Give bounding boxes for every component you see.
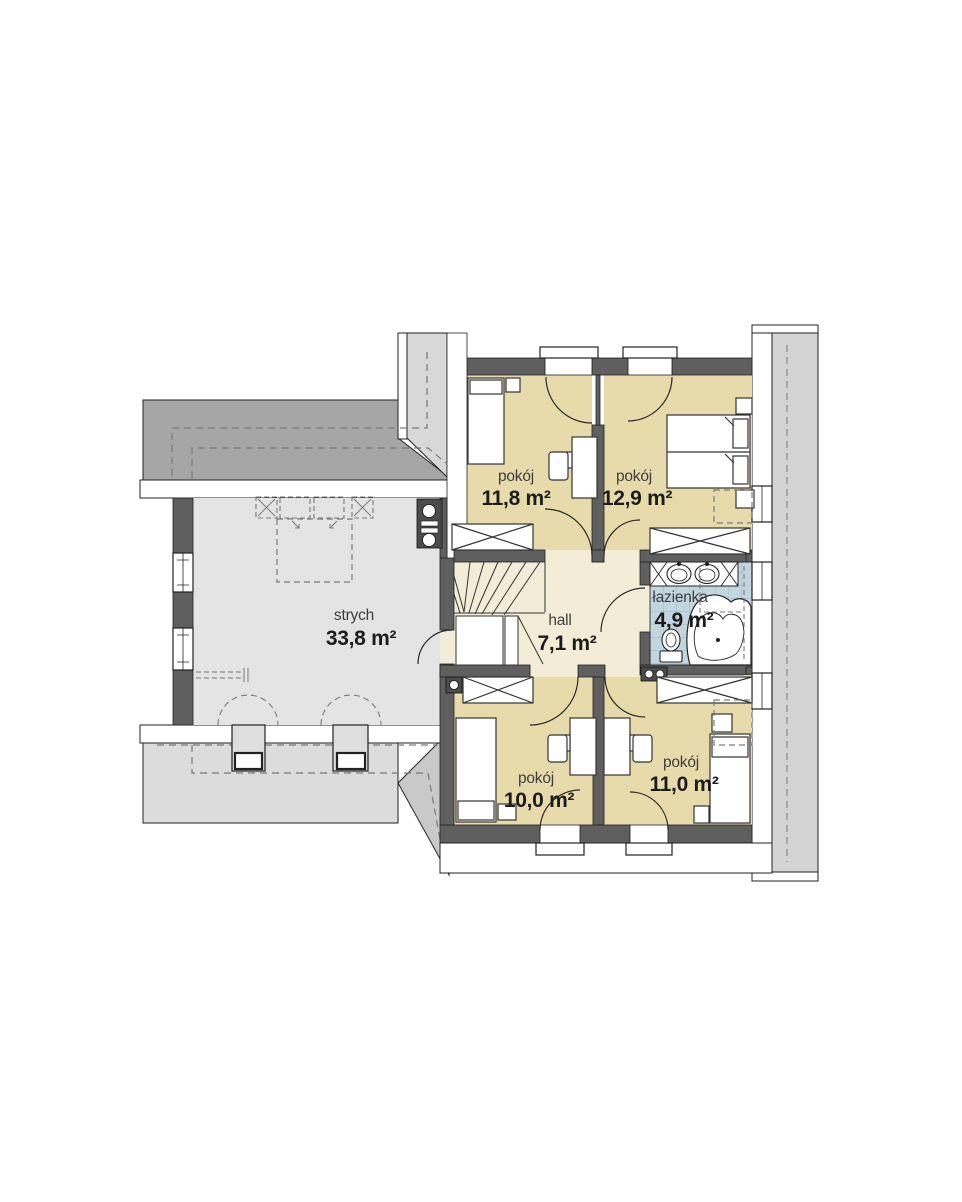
room-top-left-area-label: 11,8 m²	[481, 487, 550, 510]
window-opening	[540, 825, 580, 843]
threshold	[604, 550, 640, 562]
wall	[592, 358, 628, 375]
desk	[572, 437, 597, 498]
wall	[668, 825, 752, 843]
pillow	[733, 456, 748, 484]
room-top-right-name-label: pokój	[616, 468, 652, 485]
window-opening	[545, 358, 592, 375]
wall	[592, 550, 604, 562]
wall	[173, 592, 193, 628]
hall-area-label: 7,1 m²	[538, 632, 597, 655]
stair-landing	[456, 616, 503, 665]
pillow	[470, 380, 502, 394]
window-sill	[540, 347, 598, 358]
threshold	[440, 630, 454, 664]
toilet-tank	[660, 651, 682, 662]
knee-wall-top	[140, 480, 467, 498]
wall	[440, 558, 454, 630]
nightstand	[712, 714, 732, 732]
pillow	[712, 737, 748, 757]
room-bottom-left-name-label: pokój	[518, 770, 554, 787]
desk	[570, 718, 596, 775]
wall	[454, 550, 545, 562]
wall	[640, 562, 650, 585]
wall	[173, 670, 193, 725]
knee-wall-bottom	[140, 725, 452, 743]
chair	[549, 452, 568, 480]
nightstand	[694, 806, 709, 823]
window-opening	[630, 825, 668, 843]
room-bottom-right-name-label: pokój	[663, 754, 699, 771]
nightstand	[736, 490, 754, 508]
roof-right-band	[772, 333, 818, 873]
pillow	[458, 801, 494, 820]
wall	[440, 825, 540, 843]
threshold	[605, 665, 645, 677]
wall-nub	[746, 667, 752, 675]
threshold	[545, 550, 592, 562]
stair-stringer	[505, 616, 518, 665]
floor-plan-canvas: pokój 11,8 m² pokój 12,9 m² hall 7,1 m² …	[0, 0, 962, 1202]
dormer-window	[235, 753, 262, 769]
wall	[467, 358, 545, 375]
toilet-bowl	[662, 629, 680, 651]
window-sill	[536, 843, 584, 855]
gable-wall-right	[752, 333, 772, 873]
window-opening	[628, 358, 672, 375]
attic-name-label: strych	[334, 607, 374, 624]
faucet	[705, 562, 709, 566]
wall	[672, 358, 752, 375]
lower-wall-band	[440, 843, 772, 873]
faucet	[677, 562, 681, 566]
pillow	[733, 419, 748, 448]
vent-stack-hall	[446, 677, 462, 693]
attic-area-label: 33,8 m²	[326, 627, 397, 650]
wall	[578, 665, 605, 677]
chair	[548, 735, 567, 762]
wall-partition-thin	[596, 375, 600, 427]
wall	[580, 825, 630, 843]
window-sill	[626, 843, 672, 855]
nightstand	[736, 398, 752, 414]
room-top-left-name-label: pokój	[498, 468, 534, 485]
wall	[640, 632, 650, 665]
dormer-window	[337, 753, 365, 769]
vanity-counter	[650, 562, 738, 586]
chimney-stack	[417, 499, 442, 548]
chair	[633, 735, 652, 762]
roof-ridge-wall	[398, 333, 407, 439]
bathtub-drain	[716, 638, 720, 642]
wall	[440, 665, 530, 677]
bathroom-name-label: łazienka	[652, 589, 708, 606]
bathroom-area-label: 4,9 m²	[655, 609, 714, 632]
threshold	[530, 665, 578, 677]
nightstand	[506, 378, 520, 392]
floor-plan: pokój 11,8 m² pokój 12,9 m² hall 7,1 m² …	[0, 0, 962, 1202]
attic-floor	[193, 498, 440, 725]
window-recess	[744, 564, 752, 598]
wall	[173, 498, 193, 553]
desk	[604, 718, 630, 775]
hall-name-label: hall	[548, 612, 571, 629]
room-bottom-right-area-label: 11,0 m²	[649, 773, 718, 796]
threshold	[640, 585, 650, 632]
room-bottom-left-area-label: 10,0 m²	[504, 789, 575, 812]
window-sill	[623, 347, 677, 358]
room-top-right-area-label: 12,9 m²	[602, 487, 673, 510]
